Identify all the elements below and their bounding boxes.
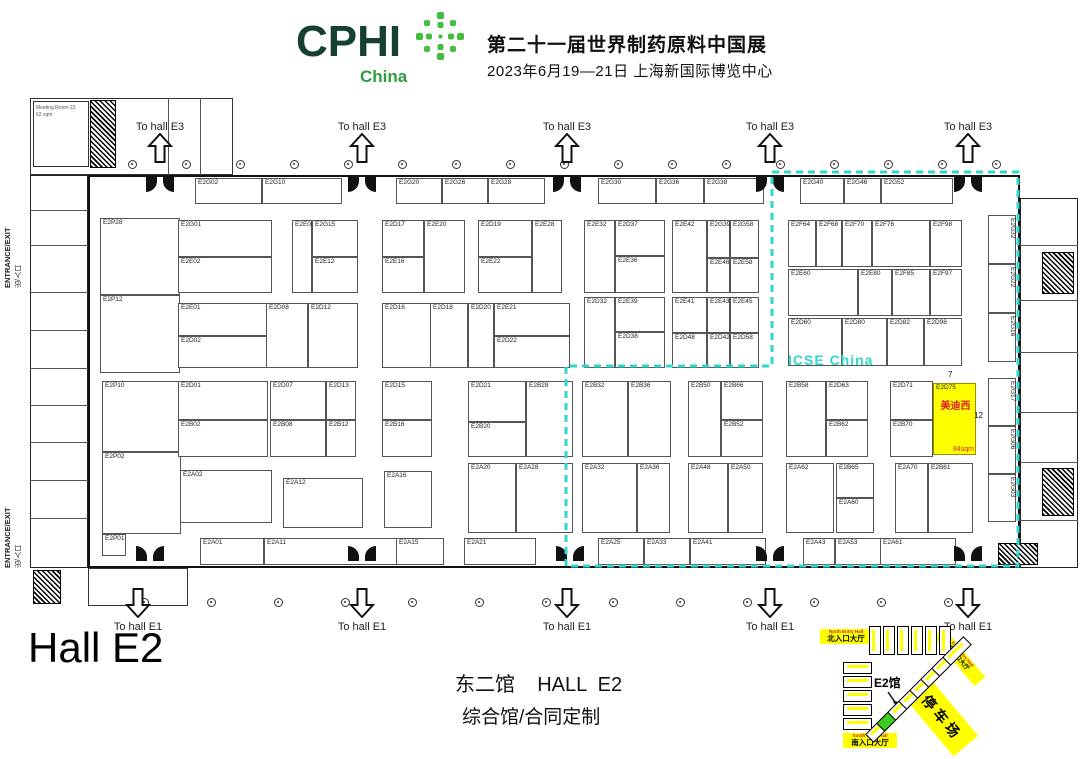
minimap-hall-north-row <box>883 626 895 655</box>
booth-e2d48: E2D48 <box>672 333 707 368</box>
booth-e2e20: E2E20 <box>424 220 465 293</box>
booth-e2e12: E2E12 <box>312 257 358 293</box>
booth-e2b02: E2B02 <box>178 420 268 457</box>
footer-hall-type: 综合馆/合同定制 <box>462 702 600 729</box>
booth-e2a12: E2A12 <box>283 478 363 528</box>
hall-title: Hall E2 <box>28 624 163 672</box>
booth-e2d71: E2D71 <box>890 381 933 420</box>
to-hall-e3-arrow: To hall E3 <box>130 121 190 166</box>
divider <box>30 405 88 406</box>
booth-e2f70: E2F70 <box>842 220 872 267</box>
expo-date-venue: 2023年6月19—21日 上海新国际博览中心 <box>487 60 773 81</box>
meeting-room-label: Meeting Room 23 <box>36 105 75 111</box>
booth-e2g46: E2G46 <box>844 178 881 204</box>
divider <box>1020 245 1078 246</box>
column-marker <box>668 160 677 169</box>
cphi-logo: CPHI China <box>296 20 446 92</box>
booth-e2e22: E2E22 <box>478 257 532 293</box>
booth-e2a02: E2A02 <box>180 470 272 523</box>
hall-label-stripe <box>847 679 868 682</box>
booth-e2a48: E2A48 <box>688 463 728 533</box>
to-hall-e3-arrow: To hall E3 <box>938 121 998 166</box>
booth-e2b65: E2B65 <box>836 463 874 498</box>
entrance-exit-lower: ENTRANCE/EXIT 出/入口 <box>3 468 27 568</box>
booth-e2f85: E2F85 <box>892 269 930 316</box>
booth-e2b32: E2B32 <box>582 381 628 457</box>
booth-e2a53: E2A53 <box>835 538 881 565</box>
booth-code: E2D75 <box>936 385 975 392</box>
booth-e2e43: E2E43 <box>707 297 730 333</box>
booth-e2d82: E2D82 <box>887 318 924 366</box>
booth-e2f64: E2F64 <box>788 220 816 267</box>
booth-e2e02: E2E02 <box>178 257 272 293</box>
to-hall-e3-label: To hall E3 <box>332 121 392 133</box>
booth-e2g52: E2G52 <box>881 178 953 204</box>
column-marker <box>810 598 819 607</box>
booth-e2a36: E2A36 <box>637 463 670 533</box>
booth-e2b20: E2B20 <box>468 422 526 457</box>
divider <box>200 98 201 175</box>
hall-label-stripe <box>847 665 868 668</box>
divider <box>1020 352 1078 353</box>
minimap-hall-west-col <box>843 718 872 730</box>
down-arrow-icon <box>938 588 998 621</box>
booth-e2e80: E2E80 <box>858 269 892 316</box>
stairs-bottomleft <box>33 570 61 604</box>
booth-e2a11: E2A11 <box>264 538 404 565</box>
booth-e2e32: E2E32 <box>584 220 615 293</box>
to-hall-e1-arrow: To hall E1 <box>332 588 392 633</box>
booth-e2d15: E2D15 <box>382 381 432 420</box>
divider <box>1020 412 1078 413</box>
booth-e2a61: E2A61 <box>880 538 956 565</box>
column-marker <box>290 160 299 169</box>
stairs-right-upper <box>1042 252 1074 294</box>
booth-e2e28: E2E28 <box>532 220 562 293</box>
minimap-hall-west-col <box>843 676 872 688</box>
north-entry-cn: 北入口大厅 <box>822 635 870 643</box>
divider <box>30 368 88 369</box>
divider <box>30 442 88 443</box>
down-arrow-icon <box>108 588 168 621</box>
booth-e2d22: E2D22 <box>494 336 570 368</box>
booth-e2p02: E2P02 <box>102 452 181 534</box>
hall-label-stripe <box>886 630 889 651</box>
down-arrow-icon <box>332 588 392 621</box>
minimap-hall-north-row <box>925 626 937 655</box>
divider <box>1020 300 1078 301</box>
stairs-topleft <box>90 100 116 168</box>
booth-e2g06: E2G06 <box>988 426 1016 474</box>
booth-e2p28: E2P28 <box>100 218 180 295</box>
booth-e2f68: E2F68 <box>816 220 842 267</box>
up-arrow-icon <box>130 133 190 166</box>
booth-e2e58: E2E58 <box>730 258 759 293</box>
minimap-hall-west-col <box>843 704 872 716</box>
floorplan-page: { "header": { "brand": "CPHI", "region":… <box>0 0 1080 759</box>
booth-e2a21: E2A21 <box>464 538 536 565</box>
booth-e2b62: E2B62 <box>826 420 868 457</box>
booth-e2g39: E2G39 <box>707 220 730 258</box>
booth-e2g36: E2G36 <box>656 178 704 204</box>
booth-e2e60: E2E60 <box>788 269 858 316</box>
booth-e2d75: E2D75美迪西84sqm <box>933 383 976 455</box>
booth-e2g17: E2G17 <box>988 378 1016 426</box>
booth-area: 84sqm <box>953 446 974 453</box>
booth-e2f98: E2F98 <box>930 220 962 267</box>
dimension-note: 7 <box>948 370 952 379</box>
booth-e2e21: E2E21 <box>494 303 570 336</box>
up-arrow-icon <box>332 133 392 166</box>
booth-e2g03: E2G03 <box>988 474 1016 522</box>
hall-label-stripe <box>847 693 868 696</box>
hall-label-stripe <box>872 630 875 651</box>
hall-label-stripe <box>942 630 945 651</box>
booth-e2e01: E2E01 <box>178 303 268 336</box>
booth-e2d01: E2D01 <box>178 381 268 420</box>
to-hall-e1-arrow: To hall E1 <box>537 588 597 633</box>
booth-e2a01: E2A01 <box>200 538 264 565</box>
booth-e2d98: E2D98 <box>924 318 962 366</box>
entrance-exit-label-cn: 出/入口 <box>14 468 24 568</box>
booth-e2b08: E2B08 <box>270 420 326 457</box>
booth-e2f76: E2F76 <box>872 220 930 267</box>
icse-zone-label: ICSE China <box>788 352 873 368</box>
booth-e2d19: E2D19 <box>478 220 532 257</box>
column-marker <box>609 598 618 607</box>
column-marker <box>877 598 886 607</box>
booth-e2b36: E2B36 <box>628 381 671 457</box>
up-arrow-icon <box>938 133 998 166</box>
booth-e2d58: E2D58 <box>730 333 759 368</box>
entrance-exit-label: ENTRANCE/EXIT <box>3 468 14 568</box>
booth-e2d17: E2D17 <box>382 220 424 257</box>
booth-e2e08: E2E08 <box>292 220 312 293</box>
column-marker <box>475 598 484 607</box>
booth-e2g38: E2G38 <box>704 178 764 204</box>
booth-e2e36: E2E36 <box>615 256 665 293</box>
to-hall-e3-label: To hall E3 <box>740 121 800 133</box>
up-arrow-icon <box>740 133 800 166</box>
booth-e2d38: E2D38 <box>615 332 665 368</box>
divider <box>1020 520 1078 521</box>
to-hall-e1-arrow: To hall E1 <box>740 588 800 633</box>
booth-e2e16: E2E16 <box>382 257 424 293</box>
down-arrow-icon <box>537 588 597 621</box>
booth-e2a43: E2A43 <box>803 538 835 565</box>
meeting-room-area: 62 sqm <box>36 112 52 118</box>
entrance-exit-label-cn: 出/入口 <box>14 188 24 288</box>
booth-e2b28: E2B28 <box>526 381 573 457</box>
to-hall-e3-arrow: To hall E3 <box>740 121 800 166</box>
booth-e2d21: E2D21 <box>468 381 526 422</box>
to-hall-e3-label: To hall E3 <box>130 121 190 133</box>
divider <box>30 292 88 293</box>
divider <box>30 245 88 246</box>
to-hall-e3-arrow: To hall E3 <box>332 121 392 166</box>
booth-e2d42: E2D42 <box>707 333 730 368</box>
booth-e2f97: E2F97 <box>930 269 962 316</box>
booth-e2g02: E2G02 <box>195 178 262 204</box>
booth-e2g26: E2G26 <box>442 178 488 204</box>
cphi-brand-text: CPHI <box>296 20 401 64</box>
column-marker <box>884 160 893 169</box>
hall-label-stripe <box>900 630 903 651</box>
column-marker <box>830 160 839 169</box>
booth-e2g20: E2G20 <box>396 178 442 204</box>
expo-title: 第二十一届世界制药原料中国展 <box>487 30 767 57</box>
booth-e2a33: E2A33 <box>644 538 690 565</box>
booth-e2g58: E2G58 <box>730 220 759 258</box>
booth-e2a25: E2A25 <box>598 538 644 565</box>
booth-e2b16: E2B16 <box>382 420 432 457</box>
down-arrow-icon <box>740 588 800 621</box>
column-marker <box>274 598 283 607</box>
divider <box>30 518 88 519</box>
booth-e2d20: E2D20 <box>468 303 494 368</box>
booth-e2b61: E2B61 <box>928 463 973 533</box>
hall-label-stripe <box>928 630 931 651</box>
booth-e2d37: E2D37 <box>615 220 665 256</box>
column-marker <box>207 598 216 607</box>
hall-label-stripe <box>847 707 868 710</box>
minimap-e2-hall-tag: E2馆 <box>874 674 901 691</box>
to-hall-e1-label: To hall E1 <box>740 621 800 633</box>
stairs-right-lower <box>1042 468 1074 516</box>
divider <box>1020 462 1078 463</box>
to-hall-e1-label: To hall E1 <box>332 621 392 633</box>
minimap-hall-north-row <box>869 626 881 655</box>
dimension-note: 12 <box>974 411 983 420</box>
booth-e2a62: E2A62 <box>786 463 834 533</box>
booth-e2e39: E2E39 <box>615 297 665 332</box>
booth-e2g15: E2G15 <box>312 220 358 257</box>
booth-e2d13: E2D13 <box>326 381 356 420</box>
booth-e2e42: E2E42 <box>672 220 707 293</box>
to-hall-e3-label: To hall E3 <box>938 121 998 133</box>
booth-e2a15: E2A15 <box>396 538 444 565</box>
booth-e2g10: E2G10 <box>262 178 342 204</box>
minimap-hall-north-row <box>911 626 923 655</box>
column-marker <box>398 160 407 169</box>
booth-e2e45: E2E45 <box>730 297 759 333</box>
to-hall-e1-label: To hall E1 <box>537 621 597 633</box>
booth-e2b52: E2B52 <box>721 420 763 457</box>
entrance-exit-label: ENTRANCE/EXIT <box>3 188 14 288</box>
divider <box>30 210 88 211</box>
column-marker <box>614 160 623 169</box>
booth-e2a28: E2A28 <box>516 463 573 533</box>
booth-e2p12: E2P12 <box>100 295 180 373</box>
booth-e2b66: E2B66 <box>721 381 763 420</box>
column-marker <box>676 598 685 607</box>
booth-e2d63: E2D63 <box>826 381 868 420</box>
booth-e2d32: E2D32 <box>584 297 615 368</box>
minimap-hall-west-col <box>843 690 872 702</box>
booth-e2p10: E2P10 <box>102 381 181 452</box>
booth-e2g32: E2G32 <box>988 215 1016 264</box>
minimap-hall-north-row <box>897 626 909 655</box>
column-marker <box>452 160 461 169</box>
divider <box>30 330 88 331</box>
booth-e2a60: E2A60 <box>836 498 874 533</box>
booth-e2g01: E2G01 <box>178 220 272 257</box>
booth-e2e41: E2E41 <box>672 297 707 333</box>
booth-e2d12: E2D12 <box>308 303 358 368</box>
booth-e2b12: E2B12 <box>326 420 356 457</box>
to-hall-e3-arrow: To hall E3 <box>537 121 597 166</box>
booth-e2b70: E2B70 <box>890 420 933 457</box>
booth-e2d18: E2D18 <box>430 303 468 368</box>
divider <box>30 480 88 481</box>
footer-hall-name: 东二馆 HALL E2 <box>455 668 622 697</box>
up-arrow-icon <box>537 133 597 166</box>
minimap-hall-west-col <box>843 662 872 674</box>
booth-e2b50: E2B50 <box>688 381 721 457</box>
booth-e2g40: E2G40 <box>800 178 844 204</box>
column-marker <box>236 160 245 169</box>
booth-e2b58: E2B58 <box>786 381 826 457</box>
booth-company: 美迪西 <box>941 402 971 412</box>
left-annex <box>30 175 88 568</box>
booth-e2g28: E2G28 <box>488 178 545 204</box>
booth-e2a41: E2A41 <box>690 538 766 565</box>
booth-e2g22: E2G22 <box>988 264 1016 313</box>
booth-e2d08: E2D08 <box>266 303 308 368</box>
booth-e2g30: E2G30 <box>598 178 656 204</box>
booth-e2a70: E2A70 <box>895 463 928 533</box>
hall-label-stripe <box>847 721 868 724</box>
booth-e2e46: E2E46 <box>707 258 730 293</box>
meeting-room: Meeting Room 23 62 sqm <box>33 101 89 167</box>
entrance-exit-upper: ENTRANCE/EXIT 出/入口 <box>3 188 27 288</box>
booth-e2a50: E2A50 <box>728 463 763 533</box>
booth-e2d02: E2D02 <box>178 336 268 368</box>
cphi-region-text: China <box>360 67 407 87</box>
booth-e2p01: E2P01 <box>102 534 126 556</box>
booth-e2g16: E2G16 <box>988 313 1016 362</box>
column-marker <box>722 160 731 169</box>
booth-e2a20: E2A20 <box>468 463 516 533</box>
cphi-starburst-icon <box>414 10 466 62</box>
booth-e2d16: E2D16 <box>382 303 432 368</box>
hall-label-stripe <box>914 630 917 651</box>
booth-e2d07: E2D07 <box>270 381 326 420</box>
column-marker <box>506 160 515 169</box>
minimap-north-entry-label: North Entry Hall 北入口大厅 <box>820 629 872 644</box>
service-bottomright <box>998 543 1038 565</box>
booth-e2a32: E2A32 <box>582 463 637 533</box>
booth-e2a16: E2A16 <box>384 471 432 528</box>
to-hall-e3-label: To hall E3 <box>537 121 597 133</box>
column-marker <box>408 598 417 607</box>
